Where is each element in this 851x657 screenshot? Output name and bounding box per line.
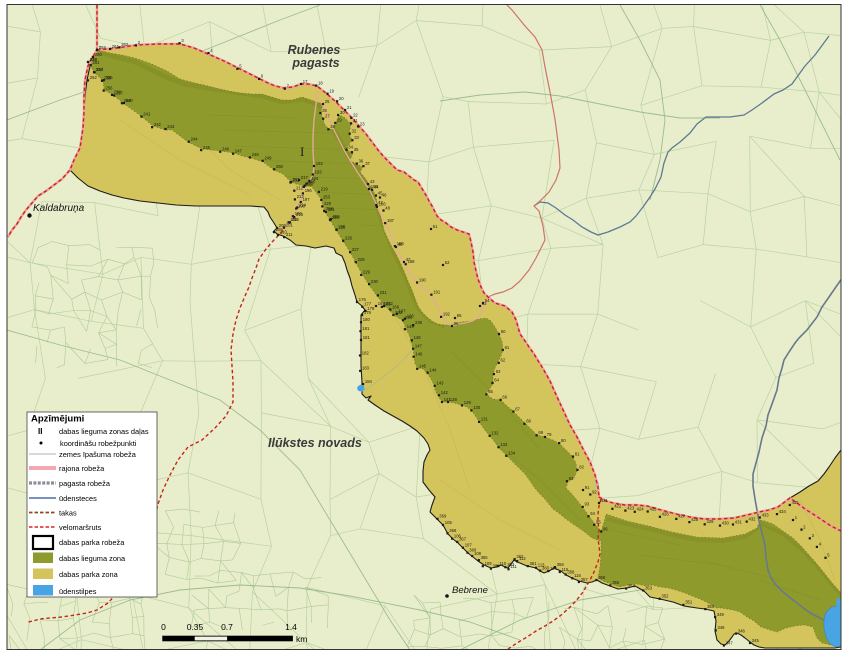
svg-text:423: 423: [627, 505, 635, 510]
svg-text:takas: takas: [59, 509, 77, 518]
svg-text:254: 254: [326, 206, 334, 211]
svg-text:188: 188: [397, 241, 405, 246]
svg-text:112: 112: [519, 556, 526, 561]
svg-text:21: 21: [347, 105, 352, 110]
svg-text:262: 262: [90, 75, 98, 80]
svg-text:37: 37: [365, 161, 370, 166]
svg-text:66: 66: [502, 395, 507, 400]
svg-text:248: 248: [252, 152, 260, 157]
svg-text:144: 144: [429, 367, 437, 372]
svg-text:347: 347: [726, 640, 734, 645]
svg-text:68: 68: [526, 419, 531, 424]
svg-text:25: 25: [325, 99, 330, 104]
svg-text:365: 365: [481, 555, 489, 560]
svg-text:zemes īpašuma robeža: zemes īpašuma robeža: [59, 450, 137, 459]
svg-text:93: 93: [585, 502, 590, 507]
svg-text:212: 212: [296, 186, 304, 191]
svg-text:430: 430: [722, 520, 730, 525]
svg-text:rajona robeža: rajona robeža: [59, 464, 105, 473]
svg-text:249: 249: [265, 156, 273, 161]
svg-text:km: km: [296, 634, 307, 644]
svg-text:116: 116: [574, 573, 581, 578]
svg-text:261: 261: [93, 60, 101, 65]
svg-text:134: 134: [508, 451, 516, 456]
svg-text:233: 233: [395, 310, 403, 315]
svg-text:23: 23: [360, 121, 365, 126]
svg-text:133: 133: [500, 442, 508, 447]
svg-text:256: 256: [106, 85, 114, 90]
svg-text:pagasta robeža: pagasta robeža: [59, 479, 111, 488]
svg-text:216: 216: [292, 217, 300, 222]
svg-text:35: 35: [354, 147, 359, 152]
svg-text:19: 19: [329, 89, 334, 94]
svg-text:26: 26: [322, 108, 327, 113]
svg-text:192: 192: [316, 161, 324, 166]
svg-text:247: 247: [235, 149, 243, 154]
svg-text:94: 94: [590, 511, 595, 516]
svg-text:141: 141: [444, 397, 452, 402]
svg-text:48: 48: [385, 205, 390, 210]
svg-text:181: 181: [362, 326, 370, 331]
svg-text:433: 433: [762, 512, 770, 517]
svg-text:113: 113: [538, 563, 545, 568]
svg-text:130: 130: [473, 405, 481, 410]
svg-text:I: I: [300, 144, 304, 159]
svg-text:242: 242: [154, 122, 162, 127]
svg-text:255: 255: [333, 214, 341, 219]
svg-text:106: 106: [454, 533, 462, 538]
svg-text:348: 348: [718, 625, 726, 630]
svg-text:36: 36: [359, 158, 364, 163]
svg-text:232: 232: [386, 301, 394, 306]
svg-text:345: 345: [752, 638, 760, 643]
svg-text:346: 346: [738, 628, 746, 633]
svg-text:191: 191: [433, 290, 441, 295]
svg-text:354: 354: [628, 583, 636, 588]
svg-text:148: 148: [414, 335, 422, 340]
svg-text:dabas parka robeža: dabas parka robeža: [59, 538, 125, 547]
svg-text:219: 219: [321, 187, 329, 192]
svg-text:241: 241: [143, 111, 151, 116]
svg-text:114: 114: [550, 566, 557, 571]
svg-text:109: 109: [485, 561, 493, 566]
svg-text:197: 197: [303, 197, 311, 202]
svg-text:255: 255: [106, 75, 114, 80]
svg-text:193: 193: [315, 169, 323, 174]
svg-text:31: 31: [353, 118, 358, 123]
svg-text:234: 234: [405, 315, 413, 320]
svg-text:132: 132: [492, 431, 500, 436]
svg-text:426: 426: [662, 512, 670, 517]
svg-text:246: 246: [222, 147, 230, 152]
svg-text:214: 214: [299, 202, 307, 207]
svg-text:356: 356: [598, 575, 606, 580]
svg-text:dabas lieguma zona: dabas lieguma zona: [59, 554, 126, 563]
svg-text:190: 190: [419, 277, 427, 282]
svg-text:257: 257: [116, 90, 124, 95]
svg-text:361: 361: [530, 561, 538, 566]
svg-text:dabas parka zona: dabas parka zona: [59, 570, 119, 579]
svg-text:243: 243: [167, 124, 175, 129]
svg-text:63: 63: [496, 369, 501, 374]
svg-text:252: 252: [306, 182, 314, 187]
svg-text:105: 105: [445, 520, 453, 525]
svg-text:435: 435: [792, 500, 800, 505]
svg-text:352: 352: [662, 594, 670, 599]
svg-text:421: 421: [601, 498, 609, 503]
svg-text:22: 22: [353, 113, 358, 118]
svg-text:51: 51: [433, 224, 438, 229]
svg-text:Bebrene: Bebrene: [452, 585, 488, 596]
svg-text:91: 91: [585, 485, 590, 490]
svg-text:260: 260: [95, 52, 103, 57]
svg-text:143: 143: [437, 381, 445, 386]
svg-text:0.7: 0.7: [221, 622, 233, 632]
svg-text:187: 187: [387, 218, 395, 223]
svg-text:350: 350: [707, 604, 715, 609]
svg-text:258: 258: [124, 98, 132, 103]
svg-text:431: 431: [735, 519, 743, 524]
svg-text:142: 142: [441, 390, 449, 395]
svg-text:67: 67: [515, 406, 520, 411]
svg-text:29: 29: [337, 118, 342, 123]
svg-text:velomaršruts: velomaršruts: [59, 523, 102, 532]
svg-text:64: 64: [494, 378, 499, 383]
svg-text:245: 245: [203, 145, 211, 150]
svg-text:ūdenstilpes: ūdenstilpes: [59, 587, 97, 596]
svg-text:357: 357: [581, 577, 589, 582]
svg-text:192: 192: [443, 312, 451, 317]
svg-text:351: 351: [685, 600, 693, 605]
svg-text:92: 92: [592, 489, 597, 494]
svg-text:179: 179: [364, 310, 372, 315]
svg-text:185: 185: [371, 184, 379, 189]
svg-text:96: 96: [454, 321, 459, 326]
svg-text:Apzīmējumi: Apzīmējumi: [31, 414, 84, 425]
svg-text:108: 108: [474, 551, 482, 556]
svg-text:60: 60: [501, 329, 506, 334]
svg-text:425: 425: [650, 506, 658, 511]
svg-text:pagasts: pagasts: [291, 56, 339, 70]
svg-text:0.35: 0.35: [187, 622, 204, 632]
svg-text:145: 145: [419, 364, 427, 369]
svg-text:32: 32: [352, 129, 357, 134]
svg-text:147: 147: [415, 344, 423, 349]
svg-text:254: 254: [96, 67, 104, 72]
svg-text:96: 96: [603, 526, 608, 531]
svg-text:61: 61: [505, 345, 510, 350]
svg-text:424: 424: [637, 507, 645, 512]
svg-text:koordināšu robežpunkti: koordināšu robežpunkti: [60, 439, 137, 448]
svg-text:83: 83: [569, 476, 574, 481]
svg-text:81: 81: [575, 451, 580, 456]
svg-text:244: 244: [191, 137, 199, 142]
svg-text:33: 33: [354, 135, 359, 140]
svg-text:369: 369: [439, 514, 447, 519]
svg-text:262: 262: [121, 42, 129, 47]
svg-text:20: 20: [339, 96, 344, 101]
svg-text:259: 259: [99, 45, 107, 50]
svg-text:28: 28: [330, 124, 335, 129]
svg-text:196: 196: [305, 188, 313, 193]
svg-text:434: 434: [779, 509, 787, 514]
svg-text:349: 349: [717, 612, 725, 617]
svg-text:256: 256: [338, 224, 346, 229]
svg-text:46: 46: [382, 192, 387, 197]
svg-text:422: 422: [614, 504, 622, 509]
svg-text:186: 186: [379, 202, 387, 207]
svg-text:110: 110: [499, 561, 506, 566]
svg-text:30: 30: [340, 110, 345, 115]
svg-text:183: 183: [362, 366, 370, 371]
svg-text:213: 213: [297, 194, 305, 199]
svg-text:115: 115: [562, 567, 569, 572]
svg-text:1.4: 1.4: [285, 622, 297, 632]
svg-text:62: 62: [501, 358, 506, 363]
svg-text:131: 131: [481, 417, 489, 422]
svg-text:229: 229: [363, 270, 371, 275]
svg-text:211: 211: [286, 232, 293, 237]
svg-text:52: 52: [445, 260, 450, 265]
svg-text:230: 230: [371, 279, 379, 284]
svg-text:79: 79: [547, 432, 552, 437]
svg-text:228: 228: [358, 257, 366, 262]
svg-text:353: 353: [645, 585, 653, 590]
svg-text:65: 65: [488, 389, 493, 394]
svg-text:184: 184: [365, 379, 373, 384]
svg-text:65: 65: [457, 313, 462, 318]
svg-text:253: 253: [323, 195, 331, 200]
svg-text:II: II: [38, 427, 42, 436]
svg-text:111: 111: [510, 564, 517, 569]
svg-text:69: 69: [538, 430, 543, 435]
svg-text:251: 251: [292, 177, 300, 182]
svg-text:Kaldabruņa: Kaldabruņa: [33, 203, 85, 214]
svg-text:Ilūkstes novads: Ilūkstes novads: [268, 436, 362, 450]
svg-text:129: 129: [464, 400, 472, 405]
svg-text:180: 180: [363, 317, 371, 322]
svg-text:355: 355: [612, 580, 620, 585]
svg-text:17: 17: [303, 79, 308, 84]
svg-text:428: 428: [691, 517, 699, 522]
svg-text:0: 0: [161, 622, 166, 632]
svg-text:181: 181: [363, 335, 371, 340]
svg-text:54: 54: [485, 298, 490, 303]
svg-text:18: 18: [318, 80, 323, 85]
svg-text:27: 27: [325, 114, 330, 119]
svg-text:226: 226: [345, 236, 353, 241]
svg-text:80: 80: [561, 438, 566, 443]
svg-text:146: 146: [415, 352, 423, 357]
svg-text:82: 82: [579, 465, 584, 470]
svg-text:Rubenes: Rubenes: [288, 43, 341, 57]
svg-text:368: 368: [449, 528, 457, 533]
svg-text:dabas lieguma zonas daļas: dabas lieguma zonas daļas: [59, 427, 149, 436]
svg-text:235: 235: [415, 320, 423, 325]
svg-text:427: 427: [678, 514, 686, 519]
svg-text:ūdensteces: ūdensteces: [59, 494, 97, 503]
svg-text:95: 95: [596, 520, 601, 525]
svg-text:128: 128: [450, 397, 458, 402]
svg-text:231: 231: [380, 290, 388, 295]
svg-text:189: 189: [408, 259, 416, 264]
svg-text:432: 432: [749, 516, 757, 521]
svg-text:250: 250: [276, 164, 284, 169]
svg-text:182: 182: [362, 350, 370, 355]
svg-text:429: 429: [707, 519, 715, 524]
svg-text:227: 227: [352, 247, 360, 252]
svg-text:217: 217: [301, 175, 309, 180]
svg-text:107: 107: [465, 543, 473, 548]
svg-text:215: 215: [296, 212, 304, 217]
